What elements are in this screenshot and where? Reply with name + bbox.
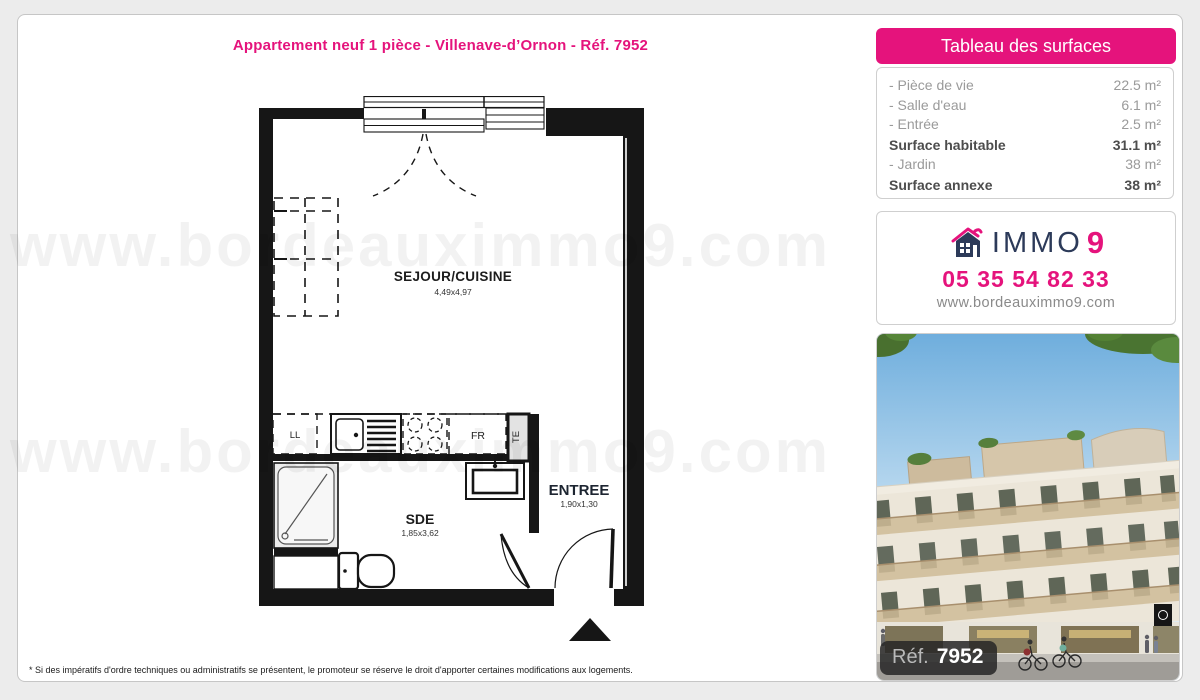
- appliance-label-ll: LL: [290, 430, 301, 441]
- washbasin: [466, 459, 524, 499]
- shower: [274, 463, 338, 548]
- appliance-label-fr: FR: [471, 430, 485, 442]
- page-title: Appartement neuf 1 pièce - Villenave-d’O…: [18, 37, 863, 54]
- sde-door-leaf: [501, 534, 529, 588]
- duct: [274, 556, 338, 589]
- surface-row-total: Surface annexe 38 m²: [889, 175, 1161, 196]
- surface-label: - Pièce de vie: [889, 76, 974, 96]
- surface-value: 38 m²: [1124, 175, 1161, 196]
- building-photo-illustration: [877, 334, 1179, 680]
- surface-label: - Salle d'eau: [889, 96, 966, 116]
- dashed-furniture: [274, 198, 338, 316]
- surface-label: - Entrée: [889, 115, 939, 135]
- surface-value: 6.1 m²: [1121, 96, 1161, 116]
- immo9-house-icon: [948, 225, 988, 261]
- surface-label: - Jardin: [889, 155, 936, 175]
- agency-logo: IMMO9: [877, 225, 1175, 261]
- agency-website: www.bordeauximmo9.com: [877, 295, 1175, 311]
- footnote: * Si des impératifs d'ordre techniques o…: [29, 665, 633, 675]
- surfaces-table: - Pièce de vie 22.5 m² - Salle d'eau 6.1…: [876, 67, 1174, 199]
- building-photo: Réf. 7952: [876, 333, 1180, 681]
- entrance-arrow-icon: [569, 618, 611, 641]
- surface-value: 2.5 m²: [1121, 115, 1161, 135]
- entry-door-leaf: [611, 529, 613, 588]
- fixed-window: [486, 108, 544, 129]
- surface-row-total: Surface habitable 31.1 m²: [889, 135, 1161, 156]
- surfaces-header: Tableau des surfaces: [876, 28, 1176, 64]
- room-dims-sde: 1,85x3,62: [401, 528, 439, 538]
- brand-9: 9: [1087, 225, 1104, 261]
- toilet: [339, 553, 394, 589]
- appliance-label-te: TE: [511, 431, 522, 443]
- surface-value: 22.5 m²: [1114, 76, 1161, 96]
- ref-number: 7952: [937, 645, 984, 669]
- room-dims-entree: 1,90x1,30: [560, 499, 598, 509]
- agency-card: IMMO9 05 35 54 82 33 www.bordeauximmo9.c…: [876, 211, 1176, 325]
- ref-badge: Réf. 7952: [880, 641, 997, 675]
- ref-label: Réf.: [892, 646, 929, 669]
- building-facade: [877, 420, 1179, 648]
- surface-row: - Jardin 38 m²: [889, 155, 1161, 175]
- main-panel: Appartement neuf 1 pièce - Villenave-d’O…: [17, 14, 1183, 682]
- door-swing-arcs: [373, 134, 476, 196]
- surface-label: Surface annexe: [889, 175, 993, 196]
- agency-phone: 05 35 54 82 33: [877, 266, 1175, 293]
- surface-row: - Salle d'eau 6.1 m²: [889, 96, 1161, 116]
- surface-label: Surface habitable: [889, 135, 1006, 156]
- floor-plan-svg: SEJOUR/CUISINE 4,49x4,97 SDE 1,85x3,62 E…: [257, 96, 648, 646]
- room-dims-sejour: 4,49x4,97: [434, 287, 472, 297]
- entry-door-arc: [555, 529, 613, 588]
- floor-plan: SEJOUR/CUISINE 4,49x4,97 SDE 1,85x3,62 E…: [257, 96, 648, 646]
- brand-immo: IMMO: [992, 227, 1083, 260]
- room-label-sejour: SEJOUR/CUISINE: [394, 269, 512, 284]
- surface-value: 38 m²: [1125, 155, 1161, 175]
- surface-row: - Pièce de vie 22.5 m²: [889, 76, 1161, 96]
- room-label-sde: SDE: [406, 511, 435, 527]
- surface-value: 31.1 m²: [1113, 135, 1161, 156]
- room-label-entree: ENTREE: [549, 482, 610, 499]
- surface-row: - Entrée 2.5 m²: [889, 115, 1161, 135]
